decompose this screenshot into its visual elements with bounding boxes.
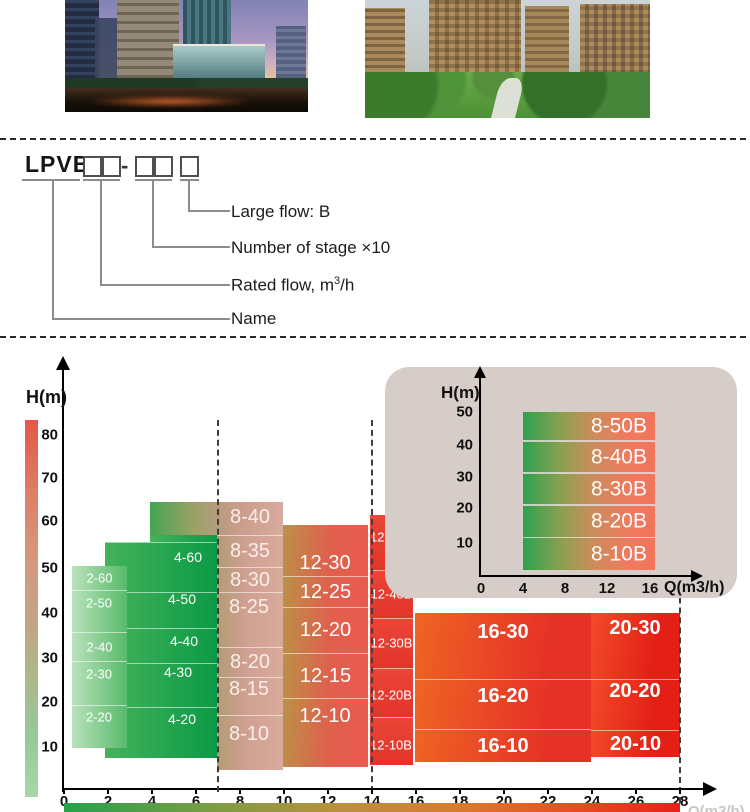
chart-block-8-20: 8-20 bbox=[217, 647, 283, 677]
annotation-rated-flow: Rated flow, m3/h bbox=[231, 275, 354, 296]
photo-commercial-building bbox=[65, 0, 308, 112]
code-box-largeflow bbox=[180, 156, 199, 177]
chart-block-label: 8-40 bbox=[230, 507, 270, 527]
inset-x-axis-title: Q(m3/h) bbox=[664, 579, 724, 597]
chart-block-label: 8-30 bbox=[230, 570, 270, 590]
y-axis-arrow-icon bbox=[56, 356, 70, 370]
chart-block-12-10B: 12-10B bbox=[370, 717, 413, 765]
chart-block-16-20: 16-20 bbox=[415, 679, 591, 729]
chart-block-12-30: 12-30 bbox=[283, 525, 368, 576]
leader-line bbox=[152, 179, 154, 247]
chart-block-8-35: 8-35 bbox=[217, 535, 283, 567]
chart-block-label: 4-60 bbox=[174, 550, 202, 564]
annotation-name: Name bbox=[231, 309, 276, 329]
chart-block-label: 12-30 bbox=[299, 553, 350, 573]
inset-bar-8-30B: 8-30B bbox=[523, 473, 655, 504]
code-box-flow-2 bbox=[102, 156, 121, 177]
chart-block-2-20: 2-20 bbox=[72, 705, 127, 748]
page: LPVB - Large flow: B Number of stage ×10… bbox=[0, 0, 750, 812]
leader-line bbox=[52, 179, 54, 319]
inset-y-axis bbox=[479, 377, 481, 577]
chart-block-label: 12-15 bbox=[300, 666, 351, 686]
inset-bar-label: 8-50B bbox=[591, 416, 647, 437]
inset-x-tick-label: 0 bbox=[477, 580, 485, 597]
chart-block-20-30: 20-30 bbox=[591, 613, 680, 679]
chart-block-label: 2-20 bbox=[86, 711, 112, 724]
photo-tower bbox=[65, 0, 99, 88]
y-tick-label: 30 bbox=[32, 650, 58, 667]
chart-block-label: 20-30 bbox=[609, 618, 660, 638]
photo-tower bbox=[117, 0, 179, 84]
inset-y-axis-title: H(m) bbox=[441, 383, 480, 403]
chart-block-label: 16-10 bbox=[477, 736, 528, 756]
chart-block-label: 4-50 bbox=[168, 592, 196, 606]
chart-block-label: 8-10 bbox=[229, 724, 269, 744]
chart-block-12-15: 12-15 bbox=[283, 653, 368, 698]
inset-x-tick-label: 12 bbox=[599, 580, 616, 597]
y-tick-label: 80 bbox=[32, 427, 58, 444]
chart-block-label: 8-35 bbox=[230, 541, 270, 561]
chart-block-12-25: 12-25 bbox=[283, 576, 368, 607]
y-tick-label: 70 bbox=[32, 470, 58, 487]
x-axis-arrow-icon bbox=[703, 782, 717, 796]
chart-block-12-10: 12-10 bbox=[283, 698, 368, 767]
inset-x-tick-label: 4 bbox=[519, 580, 527, 597]
model-code-prefix: LPVB bbox=[25, 151, 90, 178]
chart-block-label: 4-40 bbox=[170, 634, 198, 648]
chart-block-label: 8-20 bbox=[230, 652, 270, 672]
chart-block-8-10: 8-10 bbox=[217, 715, 283, 770]
chart-block-label: 2-60 bbox=[86, 572, 112, 585]
y-tick-label: 40 bbox=[32, 605, 58, 622]
leader-line bbox=[100, 284, 230, 286]
chart-block-label: 8-25 bbox=[229, 597, 269, 617]
chart-block-16-10: 16-10 bbox=[415, 729, 591, 762]
inset-bar-8-50B: 8-50B bbox=[523, 412, 655, 440]
chart-block-8-15: 8-15 bbox=[217, 677, 283, 715]
leader-line bbox=[22, 179, 80, 181]
dashed-separator bbox=[0, 138, 750, 140]
annotation-large-flow: Large flow: B bbox=[231, 202, 330, 222]
chart-block-label: 12-20B bbox=[370, 689, 412, 702]
y-tick-label: 20 bbox=[32, 694, 58, 711]
chart-block-20-20: 20-20 bbox=[591, 679, 680, 730]
inset-bar-label: 8-30B bbox=[591, 478, 647, 499]
chart-block-label: 2-40 bbox=[86, 640, 112, 653]
inset-bar-label: 8-10B bbox=[591, 543, 647, 564]
y-tick-label: 50 bbox=[32, 560, 58, 577]
inset-x-axis bbox=[479, 575, 692, 577]
chart-block-2-60: 2-60 bbox=[72, 566, 127, 590]
leader-line bbox=[188, 179, 190, 211]
code-box-stage-1 bbox=[135, 156, 154, 177]
chart-block-label: 12-30B bbox=[371, 637, 413, 650]
inset-bar-8-20B: 8-20B bbox=[523, 505, 655, 537]
inset-bar-8-10B: 8-10B bbox=[523, 537, 655, 570]
chart-block-12-20B: 12-20B bbox=[370, 668, 413, 717]
x-axis-title: Q(m3/h) bbox=[688, 803, 745, 812]
chart-block-label: 12-10 bbox=[299, 706, 350, 726]
inset-y-tick-label: 10 bbox=[447, 535, 473, 552]
chart-block-12-20: 12-20 bbox=[283, 607, 368, 653]
y-tick-label: 10 bbox=[32, 739, 58, 756]
leader-line bbox=[152, 246, 230, 248]
code-box-stage-2 bbox=[154, 156, 173, 177]
reference-line-q14 bbox=[371, 420, 373, 792]
y-tick-label: 60 bbox=[32, 513, 58, 530]
x-axis bbox=[62, 788, 704, 790]
chart-block-label: 12-10B bbox=[370, 739, 412, 752]
y-axis bbox=[62, 368, 64, 792]
annotation-stage-number: Number of stage ×10 bbox=[231, 238, 390, 258]
inset-bar-8-40B: 8-40B bbox=[523, 441, 655, 472]
chart-block-label: 20-10 bbox=[610, 734, 661, 754]
inset-x-tick-label: 16 bbox=[642, 580, 659, 597]
leader-line bbox=[188, 210, 230, 212]
leader-line bbox=[52, 318, 230, 320]
chart-block-2-30: 2-30 bbox=[72, 661, 127, 705]
chart-block-2-40: 2-40 bbox=[72, 632, 127, 661]
chart-block-label: 8-15 bbox=[229, 679, 269, 699]
chart-block-label: 20-20 bbox=[609, 681, 660, 701]
chart-block-8-30: 8-30 bbox=[217, 567, 283, 592]
dashed-separator bbox=[0, 336, 750, 338]
photo-street-glow bbox=[85, 96, 255, 107]
chart-block-20-10: 20-10 bbox=[591, 730, 680, 757]
photo-tower bbox=[276, 26, 306, 78]
inset-y-axis-arrow-icon bbox=[474, 366, 486, 378]
chart-block-label: 12-25 bbox=[300, 582, 351, 602]
inset-x-tick-label: 8 bbox=[561, 580, 569, 597]
chart-block-label: 16-30 bbox=[477, 622, 528, 642]
chart-block-16-30: 16-30 bbox=[415, 613, 591, 679]
chart-block-label: 2-50 bbox=[86, 597, 112, 610]
y-axis-title: H(m) bbox=[26, 387, 67, 408]
chart-block-label: 12-20 bbox=[300, 620, 351, 640]
chart-block-label: 2-30 bbox=[86, 668, 112, 681]
chart-block-2-50: 2-50 bbox=[72, 590, 127, 632]
inset-bar-label: 8-20B bbox=[591, 511, 647, 532]
flow-colorbar bbox=[64, 803, 680, 812]
chart-block-label: 4-30 bbox=[164, 665, 192, 679]
code-box-flow-1 bbox=[83, 156, 102, 177]
inset-y-tick-label: 30 bbox=[447, 469, 473, 486]
inset-y-tick-label: 40 bbox=[447, 437, 473, 454]
leader-line bbox=[100, 179, 102, 285]
inset-y-tick-label: 50 bbox=[447, 404, 473, 421]
inset-bar-label: 8-40B bbox=[591, 446, 647, 467]
code-separator: - bbox=[121, 153, 128, 179]
inset-y-tick-label: 20 bbox=[447, 500, 473, 517]
chart-block-12-30B: 12-30B bbox=[370, 618, 413, 668]
chart-block-label: 16-20 bbox=[477, 686, 528, 706]
photo-residential-complex bbox=[365, 0, 650, 118]
chart-block-label: 4-20 bbox=[168, 712, 196, 726]
reference-line-q7 bbox=[217, 420, 219, 792]
chart-block-8-25: 8-25 bbox=[217, 592, 283, 647]
